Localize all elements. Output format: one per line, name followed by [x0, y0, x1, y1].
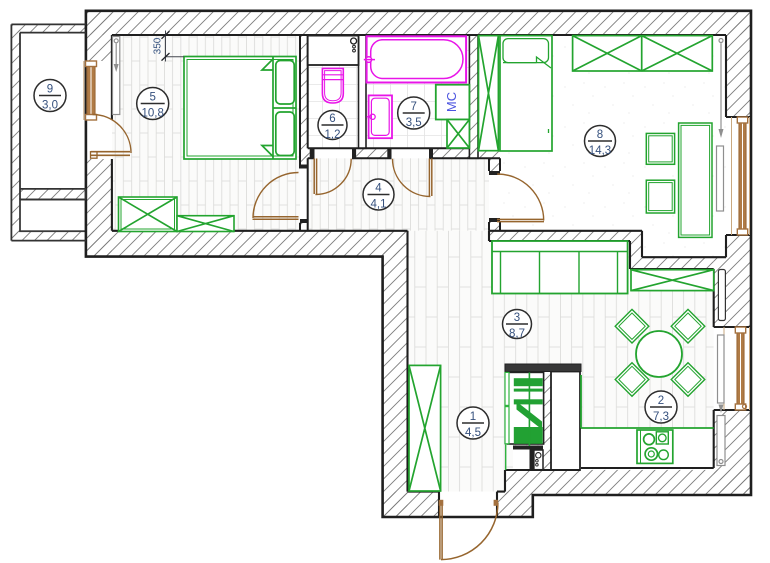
svg-text:8: 8	[597, 129, 603, 141]
svg-text:3,0: 3,0	[42, 100, 58, 112]
svg-text:3,5: 3,5	[406, 117, 422, 129]
svg-text:6: 6	[329, 113, 335, 125]
svg-text:2: 2	[658, 395, 664, 407]
svg-text:1,2: 1,2	[325, 129, 341, 141]
svg-text:8,7: 8,7	[509, 328, 525, 340]
svg-text:7,3: 7,3	[653, 411, 669, 423]
svg-text:14,3: 14,3	[589, 145, 611, 157]
svg-text:МС: МС	[444, 92, 459, 112]
svg-text:4,5: 4,5	[465, 427, 481, 439]
svg-text:4: 4	[375, 182, 382, 194]
svg-text:350: 350	[153, 37, 164, 54]
svg-text:1: 1	[470, 411, 476, 423]
svg-text:4,1: 4,1	[371, 199, 387, 211]
svg-text:7: 7	[410, 101, 416, 113]
svg-text:5: 5	[149, 91, 155, 103]
svg-text:10,8: 10,8	[142, 108, 164, 120]
svg-text:3: 3	[514, 312, 520, 324]
svg-text:9: 9	[47, 83, 53, 95]
